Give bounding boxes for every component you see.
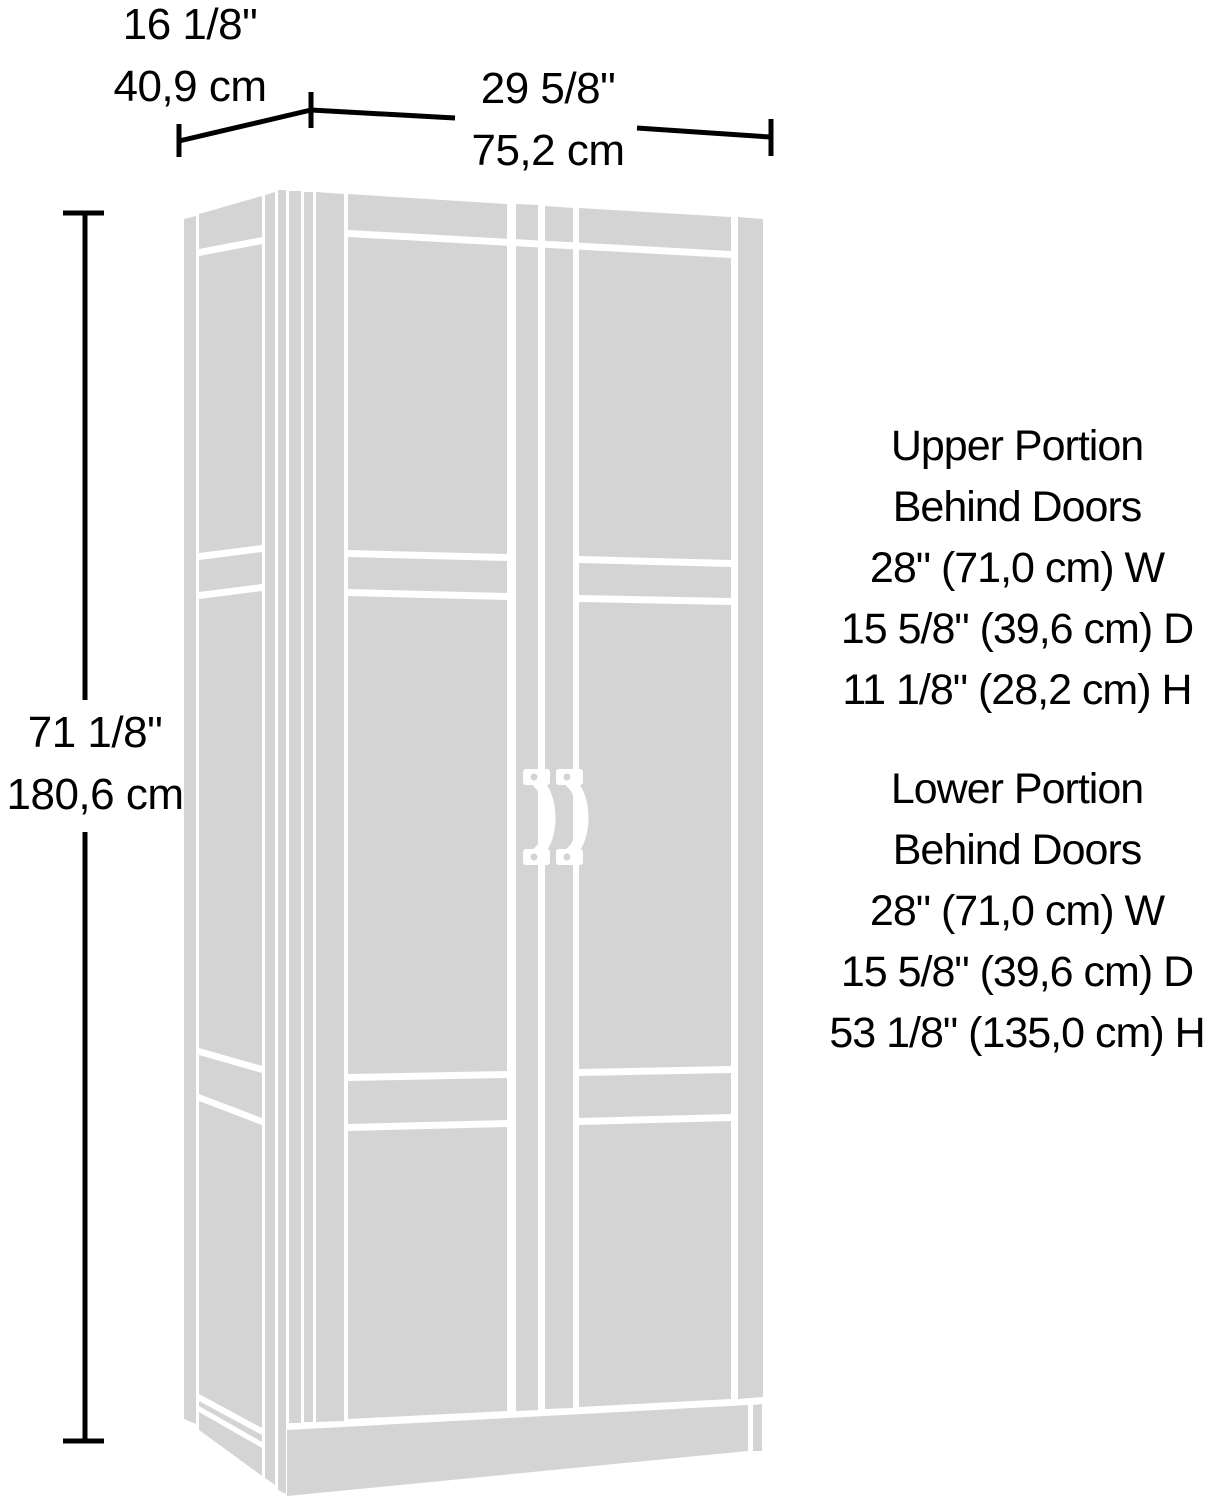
left-door-panel (348, 194, 507, 1419)
lower-portion-width: 28" (71,0 cm) W (797, 881, 1212, 942)
height-dimension-line (63, 213, 104, 1441)
width-dimension-label: 29 5/8" 75,2 cm (448, 58, 648, 182)
front-frame (278, 190, 313, 1494)
side-face (199, 196, 262, 1476)
depth-inches: 16 1/8" (90, 0, 290, 56)
upper-portion-title-line1: Upper Portion (797, 416, 1212, 477)
lower-portion-depth: 15 5/8" (39,6 cm) D (797, 942, 1212, 1003)
upper-portion-height: 11 1/8" (28,2 cm) H (797, 660, 1212, 721)
side-front-stile (265, 192, 275, 1485)
right-door-right-stile (738, 217, 763, 1399)
upper-portion-title-line2: Behind Doors (797, 477, 1212, 538)
width-inches: 29 5/8" (448, 58, 648, 120)
right-door-panel (579, 208, 731, 1407)
dimension-diagram: 16 1/8" 40,9 cm 29 5/8" 75,2 cm 71 1/8" … (0, 0, 1212, 1500)
left-door (316, 192, 538, 1422)
upper-portion-width: 28" (71,0 cm) W (797, 538, 1212, 599)
left-door-left-stile (316, 192, 344, 1422)
lower-portion-title-line1: Lower Portion (797, 759, 1212, 820)
depth-dimension-label: 16 1/8" 40,9 cm (90, 0, 290, 118)
left-door-right-stile (516, 204, 538, 1411)
upper-portion-spec: Upper Portion Behind Doors 28" (71,0 cm)… (797, 416, 1212, 721)
frame-corner-strip (278, 190, 286, 1494)
lower-portion-spec: Lower Portion Behind Doors 28" (71,0 cm)… (797, 759, 1212, 1064)
lower-portion-title-line2: Behind Doors (797, 820, 1212, 881)
height-inches: 71 1/8" (0, 702, 200, 764)
side-panel (184, 192, 275, 1485)
height-metric: 180,6 cm (0, 764, 200, 826)
depth-metric: 40,9 cm (90, 56, 290, 118)
width-metric: 75,2 cm (448, 120, 648, 182)
lower-portion-height: 53 1/8" (135,0 cm) H (797, 1003, 1212, 1064)
upper-portion-depth: 15 5/8" (39,6 cm) D (797, 599, 1212, 660)
height-dimension-label: 71 1/8" 180,6 cm (0, 702, 200, 826)
